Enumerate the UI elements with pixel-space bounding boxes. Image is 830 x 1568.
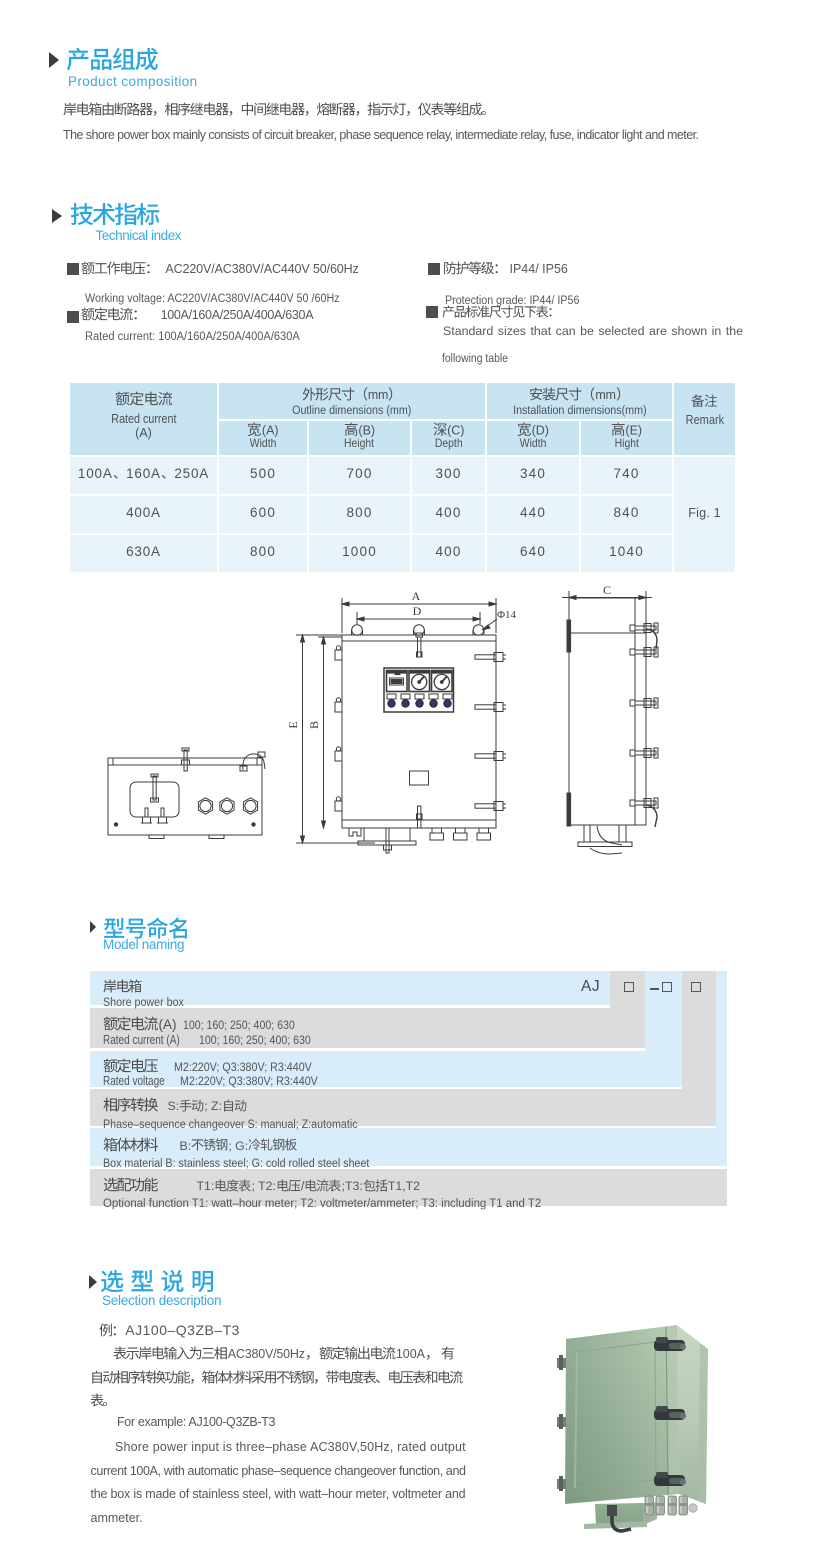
svg-text:B: B [307, 721, 321, 729]
svg-text:E: E [286, 721, 300, 728]
svg-text:A: A [412, 589, 421, 603]
svg-text:D: D [413, 604, 422, 618]
svg-text:Φ14: Φ14 [497, 609, 517, 621]
svg-text:C: C [603, 585, 611, 597]
